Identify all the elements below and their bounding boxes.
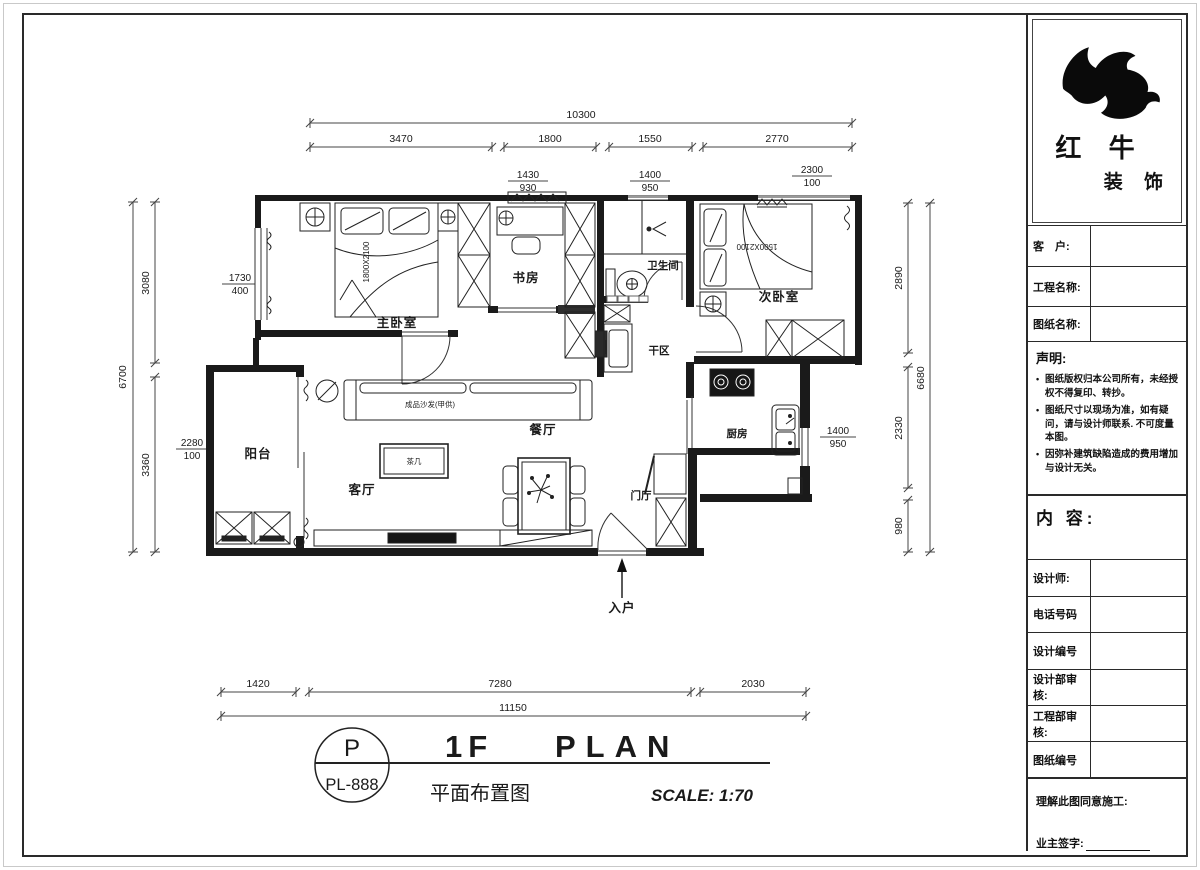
dim-frac-den: 100: [184, 451, 201, 462]
field-project-name: 工程名称:: [1028, 267, 1186, 308]
drawing-sheet: 10300 3470 1800 1550 2770 1430 930 1400 …: [0, 0, 1200, 870]
statement-item: • 图纸尺寸以现场为准，如有疑问，请与设计师联系. 不可度量本图。: [1036, 404, 1180, 445]
dim-frac-num: 1430: [517, 170, 540, 181]
stove: [710, 369, 754, 396]
curtain-icon: [845, 206, 850, 230]
logo-text-line2: 装 饰: [1104, 167, 1171, 194]
field-drawing-number: 图纸编号: [1028, 742, 1186, 778]
field-design-dept-review: 设计部审核:: [1028, 670, 1186, 707]
dim-top-seg: 1550: [638, 133, 662, 145]
content-section: 内 容:: [1028, 496, 1186, 560]
dim-top-seg: 3470: [389, 133, 413, 145]
field-design-number: 设计编号: [1028, 633, 1186, 670]
dim-frac-den: 950: [642, 183, 659, 194]
room-label-entry: 入户: [608, 600, 635, 615]
dim-frac-den: 950: [830, 439, 847, 450]
field-designer: 设计师:: [1028, 560, 1186, 597]
statement-text: 因弥补建筑缺陷造成的费用增加与设计无关。: [1045, 448, 1180, 476]
shoe-cabinet: [654, 454, 686, 494]
bed-size-label: 1500X2100: [736, 242, 777, 251]
bullet-icon: •: [1036, 448, 1045, 476]
dim-right-seg: 2330: [893, 416, 905, 440]
curtain-icon: [304, 380, 308, 401]
chair: [512, 237, 540, 254]
dim-frac-num: 1400: [639, 170, 662, 181]
dim-frac-num: 2280: [181, 438, 204, 449]
plant-icon: [528, 475, 554, 504]
field-label: 电话号码: [1028, 597, 1091, 632]
title-scale: SCALE: 1:70: [651, 786, 754, 805]
dim-bottom-seg: 1420: [246, 678, 270, 690]
curtain-icon: [304, 518, 308, 539]
pillow: [704, 209, 726, 246]
curtain-icon: [267, 232, 271, 250]
furniture-label-tea-table: 茶几: [407, 456, 422, 466]
field-label: 设计编号: [1028, 633, 1091, 669]
chair: [503, 466, 518, 494]
dim-bottom-seg: 2030: [741, 678, 765, 690]
door-entry: [598, 513, 648, 550]
chair: [570, 498, 585, 526]
field-engineering-dept-review: 工程部审核:: [1028, 706, 1186, 742]
title-cn: 平面布置图: [430, 782, 530, 805]
dim-bottom-total: 11150: [499, 702, 527, 714]
tv: [388, 533, 456, 543]
statement-item: • 图纸版权归本公司所有，未经授权不得复印、转抄。: [1036, 373, 1180, 401]
room-label-foyer: 门厅: [631, 489, 652, 502]
threshold-cabinet: [558, 305, 595, 314]
room-label-bath: 卫生间: [647, 259, 679, 272]
dining-table: [518, 458, 570, 534]
door-second-bedroom: [696, 306, 742, 352]
dim-left-seg: 3080: [140, 271, 152, 295]
dim-bottom-seg: 7280: [488, 678, 512, 690]
bed-size-label: 1800X2100: [362, 241, 371, 282]
toilet-tank: [606, 269, 615, 299]
field-drawing-name: 图纸名称:: [1028, 307, 1186, 342]
dim-frac-num: 1400: [827, 426, 850, 437]
statement-title: 声明:: [1036, 348, 1180, 367]
signature-line: [1086, 838, 1150, 851]
room-label-dry: 干区: [649, 345, 670, 357]
dim-right-total: 6680: [915, 366, 927, 390]
bullet-icon: •: [1036, 373, 1045, 401]
sofa: [344, 380, 592, 420]
pillow: [704, 249, 726, 286]
title-en-plan: PLAN: [555, 729, 679, 764]
field-label: 图纸名称:: [1028, 307, 1091, 341]
chair: [570, 466, 585, 494]
floor-plan-drawing: 10300 3470 1800 1550 2770 1430 930 1400 …: [24, 15, 1024, 853]
title-en-1f: 1F: [445, 729, 493, 764]
dim-frac-den: 100: [804, 178, 821, 189]
chair: [503, 498, 518, 526]
field-label: 客 户:: [1028, 226, 1091, 266]
door-master: [402, 336, 450, 384]
dim-top-seg: 1800: [538, 133, 562, 145]
room-label-study: 书房: [512, 270, 539, 285]
room-label-master: 主卧室: [377, 315, 418, 330]
dim-left-seg: 3360: [140, 453, 152, 477]
furniture-label-sofa: 成品沙发(甲供): [405, 399, 455, 409]
bed-master: [335, 203, 438, 317]
field-phone: 电话号码: [1028, 597, 1186, 633]
footer-agree-text: 理解此图同意施工:: [1036, 793, 1180, 809]
footer-sign-label: 业主签字:: [1036, 835, 1084, 851]
statement-item: • 因弥补建筑缺陷造成的费用增加与设计无关。: [1036, 448, 1180, 476]
title-letter: P: [344, 735, 360, 762]
room-label-balcony: 阳台: [244, 446, 271, 461]
duct: [788, 478, 802, 494]
drawing-title: P PL-888 1F PLAN 平面布置图 SCALE: 1:70: [315, 728, 770, 805]
room-label-dining: 餐厅: [528, 422, 556, 437]
field-label: 设计部审核:: [1028, 670, 1091, 706]
entry-arrow: [617, 558, 627, 598]
field-label: 图纸编号: [1028, 742, 1091, 777]
dim-top-seg: 2770: [765, 133, 789, 145]
logo-text-line1: 红 牛: [1055, 128, 1144, 165]
logo-section: 红 牛 装 饰: [1028, 15, 1186, 226]
curtain-icon: [267, 296, 271, 314]
statement-section: 声明: • 图纸版权归本公司所有，未经授权不得复印、转抄。 • 图纸尺寸以现场为…: [1028, 342, 1186, 496]
title-block: 红 牛 装 饰 客 户: 工程名称: 图纸名称: 声明: • 图纸版权归本公司所…: [1026, 15, 1186, 851]
title-code: PL-888: [325, 776, 378, 794]
field-label: 工程名称:: [1028, 267, 1091, 307]
dim-frac-num: 1730: [229, 273, 252, 284]
bullet-icon: •: [1036, 404, 1045, 445]
bull-logo-icon: [1051, 34, 1163, 126]
dim-left-total: 6700: [117, 365, 129, 389]
statement-text: 图纸版权归本公司所有，未经授权不得复印、转抄。: [1045, 373, 1180, 401]
dim-frac-den: 400: [232, 286, 249, 297]
room-label-living: 客厅: [347, 482, 375, 497]
field-customer: 客 户:: [1028, 226, 1186, 267]
room-label-kitchen: 厨房: [727, 427, 748, 440]
dim-right-seg: 980: [893, 517, 905, 535]
field-label: 工程部审核:: [1028, 706, 1091, 741]
dim-top-total: 10300: [566, 109, 595, 121]
dim-frac-num: 2300: [801, 165, 824, 176]
wardrobe: [766, 320, 844, 358]
statement-text: 图纸尺寸以现场为准，如有疑问，请与设计师联系. 不可度量本图。: [1045, 404, 1180, 445]
shower-icon: [647, 227, 651, 231]
room-label-second: 次卧室: [759, 289, 800, 304]
footer-section: 理解此图同意施工: 业主签字:: [1028, 778, 1186, 851]
dim-right-seg: 2890: [893, 266, 905, 290]
field-label: 设计师:: [1028, 560, 1091, 596]
